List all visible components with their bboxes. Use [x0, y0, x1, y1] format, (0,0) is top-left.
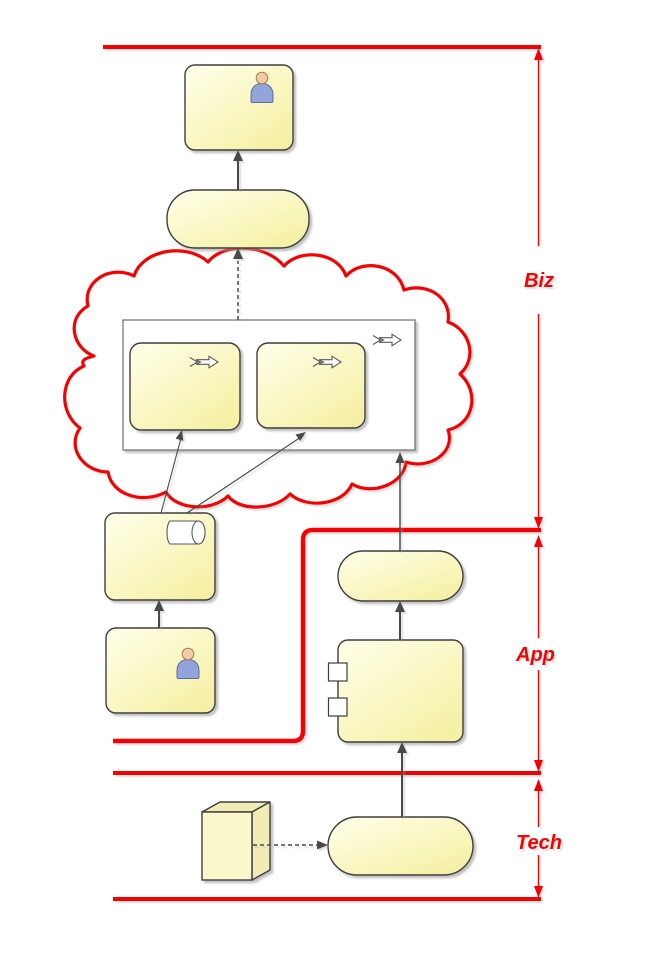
- biz-dimension-arrow-down: [534, 517, 543, 529]
- process-box-1: [130, 343, 240, 430]
- biz-layer-shapes: [65, 65, 472, 507]
- cylinder-icon: [167, 521, 205, 544]
- cube-front-face: [202, 812, 252, 880]
- app-layer-label: App: [515, 644, 555, 666]
- arrowhead-component-to-apppill: [395, 601, 405, 612]
- arrowhead-cube-to-techpill: [317, 841, 328, 850]
- arrowhead-pill-to-actor: [233, 150, 243, 161]
- arrowhead-actor-to-cylinder: [154, 600, 164, 611]
- biz-actor-box: [185, 65, 293, 150]
- diagram-canvas: Biz App Tech: [0, 0, 657, 978]
- app-component-box: [338, 640, 463, 742]
- cube-right-face: [252, 802, 270, 880]
- biz-service-pill: [167, 190, 309, 248]
- process-box-2: [257, 343, 365, 428]
- biz-layer-label: Biz: [524, 270, 554, 292]
- tech-service-pill: [328, 817, 473, 875]
- component-port-icon-1: [329, 663, 348, 681]
- tech-layer-shapes: [202, 802, 473, 880]
- component-port-icon-2: [329, 698, 348, 716]
- tech-dimension-arrow-down: [534, 886, 543, 898]
- archimate-sketch-diagram: Biz App Tech: [0, 0, 657, 978]
- arrowhead-techpill-to-component: [397, 742, 407, 753]
- tech-node-cube: [202, 802, 270, 880]
- tech-dimension-arrow-up: [534, 779, 543, 791]
- app-service-pill: [338, 551, 463, 601]
- tech-layer-label: Tech: [516, 832, 562, 854]
- app-dimension-arrow-down: [534, 760, 543, 772]
- app-dimension-arrow-up: [534, 535, 543, 547]
